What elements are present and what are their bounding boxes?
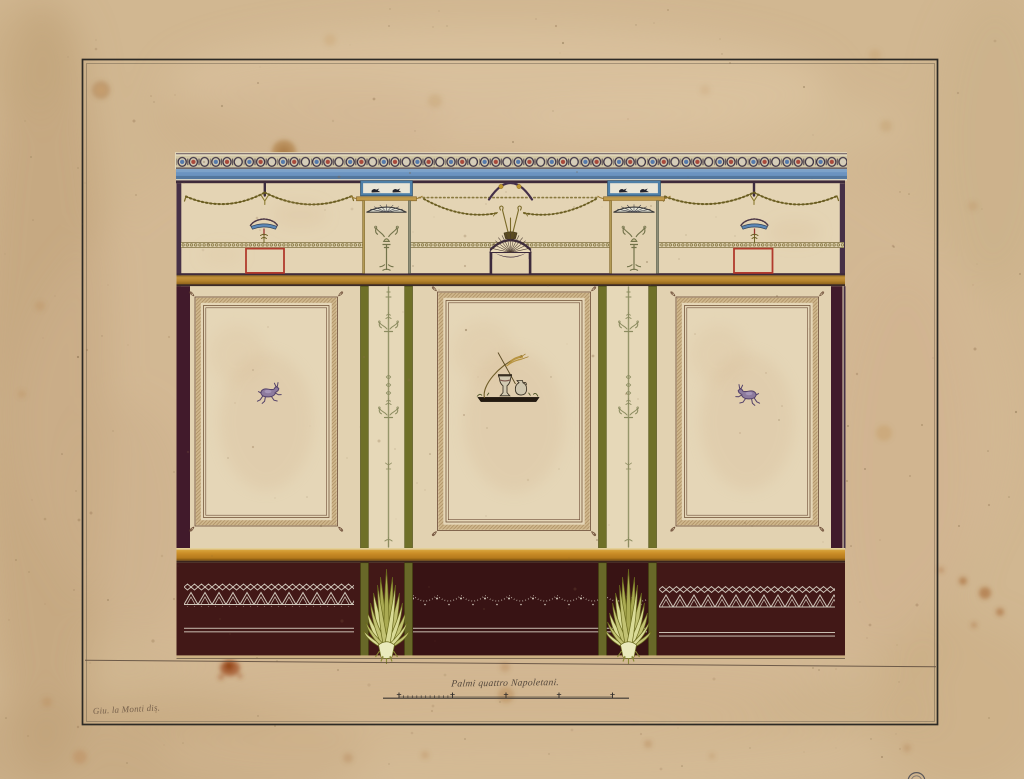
svg-text:Palmi quattro Napoletani.: Palmi quattro Napoletani. (450, 677, 560, 690)
